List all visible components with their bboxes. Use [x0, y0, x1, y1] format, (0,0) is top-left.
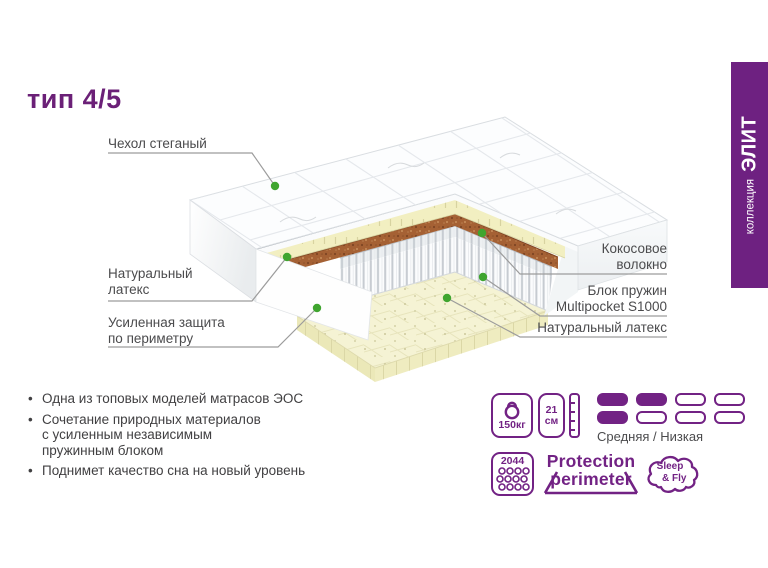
feature-list: Одна из топовых моделей матрасов ЭОС Соч… — [27, 391, 367, 484]
feature-item: Сочетание природных материалов с усиленн… — [27, 412, 367, 459]
firmness-pill — [597, 411, 628, 424]
page-title: тип 4/5 — [27, 84, 122, 115]
label-springs: Блок пружин Multipocket S1000 — [556, 283, 667, 315]
springs-grid-icon — [496, 467, 530, 493]
callout-dot — [479, 273, 487, 281]
callout-dot — [443, 294, 451, 302]
height-unit: см — [545, 416, 559, 427]
label-perimeter: Усиленная защита по периметру — [108, 315, 225, 347]
protection-perimeter-logo: Protection perimeter — [540, 452, 642, 496]
firmness-pill — [597, 393, 628, 406]
collection-prefix: коллекция — [744, 179, 756, 234]
infographic-page: тип 4/5 Чехол стеганый Натуральный латек… — [0, 0, 768, 568]
protection-trapezoid-icon — [540, 452, 642, 496]
callout-dot — [478, 229, 486, 237]
firmness-pill — [675, 411, 706, 424]
brand-line2: & Fly — [662, 473, 686, 484]
feature-item: Одна из топовых моделей матрасов ЭОС — [27, 391, 367, 407]
callout-dot — [283, 253, 291, 261]
label-latex-left: Натуральный латекс — [108, 266, 193, 298]
height-value: 21 — [546, 405, 558, 416]
collection-banner-text: коллекция ЭЛИТ — [738, 116, 761, 234]
firmness-label: Средняя / Низкая — [597, 429, 703, 444]
max-weight-badge: 150кг — [491, 393, 533, 438]
firmness-pill — [714, 393, 745, 406]
firmness-pill — [714, 411, 745, 424]
ruler-icon — [569, 393, 580, 438]
max-weight-value: 150кг — [498, 420, 525, 431]
callout-dot — [313, 304, 321, 312]
collection-name: ЭЛИТ — [738, 116, 761, 172]
label-latex-right: Натуральный латекс — [537, 320, 667, 336]
sleep-fly-logo: Sleep & Fly — [644, 452, 702, 496]
label-coconut: Кокосовое волокно — [602, 241, 667, 273]
callout-dot — [271, 182, 279, 190]
springs-count-badge: 2044 — [491, 452, 534, 496]
feature-item: Поднимет качество сна на новый уровень — [27, 463, 367, 479]
kettlebell-icon — [500, 398, 524, 420]
firmness-indicator — [597, 393, 745, 424]
firmness-pill — [636, 393, 667, 406]
brand-line1: Sleep — [644, 461, 696, 472]
firmness-pill — [675, 393, 706, 406]
collection-banner: коллекция ЭЛИТ — [731, 62, 768, 288]
label-cover: Чехол стеганый — [108, 136, 207, 152]
firmness-pill — [636, 411, 667, 424]
callout-line-cover — [108, 153, 275, 186]
springs-count-value: 2044 — [501, 456, 524, 467]
height-badge: 21 см — [538, 393, 565, 438]
